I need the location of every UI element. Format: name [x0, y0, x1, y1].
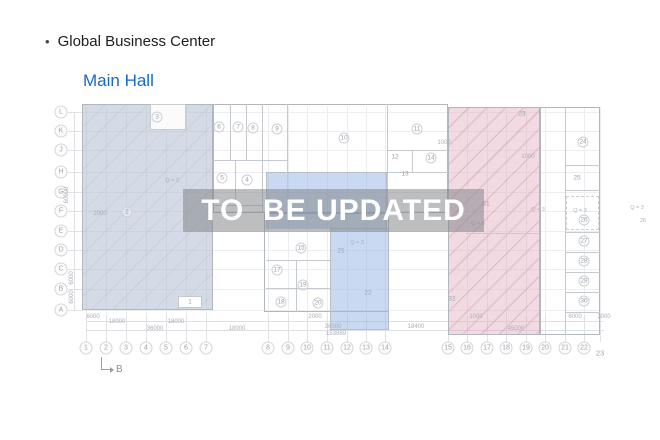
- row-leader: [68, 250, 82, 251]
- axis-col-13: 13: [360, 342, 373, 355]
- wall: [565, 165, 600, 166]
- axis-col-19: 19: [520, 342, 533, 355]
- dimension-label: 6000: [568, 314, 581, 320]
- annotation: Q = 3: [573, 208, 587, 214]
- room-label-17: 17: [272, 265, 283, 276]
- watermark-text: TO BE UPDATED: [201, 194, 466, 228]
- annotation: Q = 3: [350, 240, 364, 246]
- annotation: Q = 3: [531, 207, 545, 213]
- wall: [565, 292, 600, 293]
- floor-plan: TO BE UPDATED B 123456789101112131415161…: [0, 0, 660, 440]
- room-label-10: 10: [339, 133, 350, 144]
- axis-col-14: 14: [379, 342, 392, 355]
- axis-col-4: 4: [140, 342, 153, 355]
- room-label-26: 26: [579, 215, 590, 226]
- axis-col-5: 5: [160, 342, 173, 355]
- dimension-label: 18400: [408, 324, 425, 330]
- axis-row-C: C: [55, 263, 68, 276]
- row-leader: [68, 131, 82, 132]
- room-label-27: 27: [579, 236, 590, 247]
- room-label-14: 14: [426, 153, 437, 164]
- wall: [412, 150, 413, 172]
- room-label-25: 25: [573, 175, 580, 182]
- axis-row-H: H: [55, 166, 68, 179]
- room-label-9: 9: [272, 124, 283, 135]
- annotation: Q = 3: [630, 205, 644, 211]
- dimension-label: 18000: [229, 326, 246, 332]
- dimension-label: 18000: [168, 319, 185, 325]
- wall: [565, 272, 600, 273]
- axis-col-2: 2: [100, 342, 113, 355]
- col-leader: [268, 316, 269, 342]
- row-leader: [68, 211, 82, 212]
- axis-col-9: 9: [282, 342, 295, 355]
- room-label-15: 15: [296, 243, 307, 254]
- dimension-label: 36000: [147, 326, 164, 332]
- row-leader: [68, 172, 82, 173]
- room-label-19: 19: [298, 280, 309, 291]
- grid-line-col-23: [600, 107, 601, 316]
- axis-row-E: E: [55, 225, 68, 238]
- dimension-label: 1000: [437, 140, 450, 146]
- annotation: 26: [640, 218, 646, 224]
- dimension-label: 36000: [325, 324, 342, 330]
- axis-col-3: 3: [120, 342, 133, 355]
- dimension-label: 6000: [86, 314, 99, 320]
- axis-col-20: 20: [539, 342, 552, 355]
- room-label-5: 5: [217, 173, 228, 184]
- room-label-4: 4: [242, 175, 253, 186]
- wall: [387, 150, 448, 151]
- wall: [387, 172, 448, 173]
- dimension-label: 3000: [597, 314, 610, 320]
- axis-col-1: 1: [80, 342, 93, 355]
- wall: [213, 160, 287, 161]
- row-leader: [68, 150, 82, 151]
- col-leader: [288, 316, 289, 342]
- axis-row-F: F: [55, 205, 68, 218]
- room-label-28: 28: [579, 256, 590, 267]
- dimension-label: 1000: [469, 314, 482, 320]
- axis-col-8: 8: [262, 342, 275, 355]
- axis-col-18: 18: [500, 342, 513, 355]
- axis-row-L: L: [55, 106, 68, 119]
- axis-col-6: 6: [180, 342, 193, 355]
- wall: [246, 104, 247, 160]
- dimension-label: 6000: [69, 290, 75, 303]
- col-leader: [126, 316, 127, 342]
- wall: [565, 107, 566, 335]
- col-leader: [106, 316, 107, 342]
- room-label-21: 21: [337, 248, 344, 255]
- axis-col-12: 12: [341, 342, 354, 355]
- room-label-11: 11: [412, 124, 423, 135]
- screenshot-root: • Global Business Center Main Hall TO BE…: [0, 0, 660, 440]
- axis-col-16: 16: [461, 342, 474, 355]
- axis-col-21: 21: [559, 342, 572, 355]
- axis-col-11: 11: [321, 342, 334, 355]
- wall: [565, 312, 600, 313]
- dimension-label: 153869: [326, 331, 346, 337]
- room-label-1: 1: [188, 299, 192, 306]
- dimension-label: 2000: [93, 211, 106, 217]
- axis-col-22: 22: [578, 342, 591, 355]
- room-label-3: 3: [152, 112, 163, 123]
- room-label-2: 2: [122, 207, 133, 218]
- room-label-30: 30: [579, 296, 590, 307]
- dimension-label: 6000: [69, 271, 75, 284]
- row-leader: [68, 231, 82, 232]
- room-label-7: 7: [233, 122, 244, 133]
- room-label-24: 24: [578, 137, 589, 148]
- section-marker-label: B: [116, 364, 123, 375]
- axis-row-J: J: [55, 144, 68, 157]
- dimension-label: 60000: [64, 187, 70, 204]
- section-arrow-icon: [110, 367, 114, 373]
- wall: [466, 233, 540, 234]
- annotation: Q = 3: [165, 178, 179, 184]
- wall: [565, 190, 600, 191]
- wall: [565, 252, 600, 253]
- room-label-29: 29: [579, 276, 590, 287]
- row-leader: [68, 310, 82, 311]
- room-label-12: 12: [391, 154, 398, 161]
- axis-row-A: A: [55, 304, 68, 317]
- dimension-label: 18000: [109, 319, 126, 325]
- axis-col-15: 15: [442, 342, 455, 355]
- dimension-label: 1000: [521, 154, 534, 160]
- room-label-32: 32: [448, 296, 455, 303]
- room-label-20: 20: [313, 298, 324, 309]
- axis-col-10: 10: [301, 342, 314, 355]
- row-leader: [68, 112, 82, 113]
- room-label-22: 22: [364, 290, 371, 297]
- row-leader: [68, 192, 82, 193]
- axis-col-17: 17: [481, 342, 494, 355]
- col-leader: [206, 316, 207, 342]
- col-leader: [186, 316, 187, 342]
- axis-row-B: B: [55, 283, 68, 296]
- wall: [565, 232, 600, 233]
- row-leader: [68, 269, 82, 270]
- dimension-label: 45000: [508, 326, 525, 332]
- axis-col-7: 7: [200, 342, 213, 355]
- room-label-23: 23: [518, 111, 525, 118]
- axis-row-D: D: [55, 244, 68, 257]
- room-label-13: 13: [401, 171, 408, 178]
- wall: [230, 104, 231, 160]
- axis-col-23: 23: [594, 347, 607, 360]
- dimension-label: 2000: [308, 314, 321, 320]
- room-label-8: 8: [248, 123, 259, 134]
- axis-row-K: K: [55, 125, 68, 138]
- wall: [266, 260, 330, 261]
- room-label-6: 6: [214, 122, 225, 133]
- room-label-18: 18: [276, 297, 287, 308]
- watermark-band: TO BE UPDATED: [183, 189, 484, 232]
